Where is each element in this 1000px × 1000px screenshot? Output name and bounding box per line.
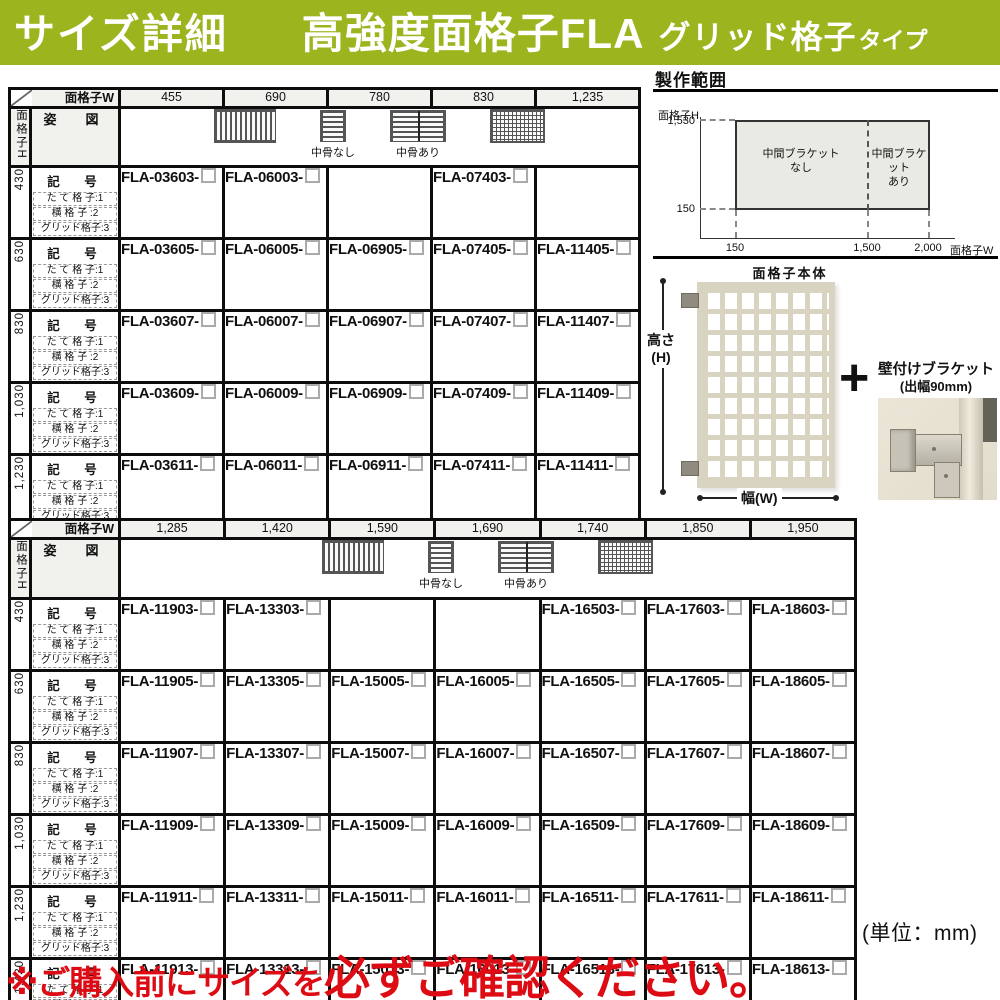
product-code-cell: FLA-06005- <box>224 239 328 311</box>
color-option-box <box>306 816 321 831</box>
product-code: FLA-07405- <box>433 241 511 258</box>
screw <box>944 474 948 478</box>
product-code: FLA-16507- <box>542 745 620 762</box>
product-code: FLA-17605- <box>647 673 725 690</box>
color-option-box <box>513 240 528 255</box>
product-code-cell: FLA-18603- <box>750 599 855 671</box>
figure-cell: 中骨なし中骨あり <box>120 108 640 167</box>
product-code: FLA-18605- <box>752 673 830 690</box>
row-code-header: 記 号た て 格 子:1横 格 子 :2グリッド格子:3 <box>31 239 120 311</box>
color-option-box <box>305 312 320 327</box>
product-code-cell: FLA-06007- <box>224 311 328 383</box>
product-code-cell: FLA-07403- <box>432 167 536 239</box>
product-code-cell <box>328 167 432 239</box>
product-code: FLA-13303- <box>226 601 304 618</box>
product-code: FLA-11903- <box>121 601 198 618</box>
color-option-box <box>726 888 741 903</box>
product-code-cell: FLA-11903- <box>120 599 225 671</box>
color-option-box <box>727 600 742 615</box>
figure-caption: 中骨なし <box>419 575 463 591</box>
row-code-header: 記 号た て 格 子:1横 格 子 :2グリッド格子:3 <box>31 167 120 239</box>
row-code-header: 記 号た て 格 子:1横 格 子 :2グリッド格子:3 <box>31 743 120 815</box>
product-code-cell: FLA-11411- <box>536 455 640 527</box>
product-code-cell: FLA-18609- <box>750 815 855 887</box>
wall-bracket-photo <box>878 398 997 500</box>
product-code: FLA-16011- <box>436 889 513 906</box>
grid-lattice-thumb <box>598 540 653 574</box>
product-code: FLA-06009- <box>225 385 303 402</box>
range-y-min: 150 <box>653 203 695 215</box>
figure-caption: 中骨なし <box>311 144 355 160</box>
product-code: FLA-06011- <box>225 457 302 474</box>
product-code: FLA-07407- <box>433 313 511 330</box>
product-code-cell: FLA-06907- <box>328 311 432 383</box>
color-option-box <box>409 312 424 327</box>
product-code: FLA-16503- <box>542 601 620 618</box>
color-option-box <box>516 816 531 831</box>
product-code: FLA-18607- <box>752 745 830 762</box>
column-width-header: 1,420 <box>225 520 330 539</box>
color-option-box <box>832 960 847 975</box>
product-code: FLA-06907- <box>329 313 407 330</box>
product-code-cell: FLA-13309- <box>225 815 330 887</box>
product-code: FLA-03605- <box>121 241 199 258</box>
color-option-box <box>200 672 215 687</box>
color-option-box <box>201 384 216 399</box>
color-option-box <box>727 816 742 831</box>
color-option-box <box>513 168 528 183</box>
range-zone-right: 中間ブラケット あり <box>869 147 929 189</box>
product-code: FLA-13309- <box>226 817 304 834</box>
range-x-axis <box>700 238 955 239</box>
column-width-header: 1,285 <box>120 520 225 539</box>
product-code-cell: FLA-03607- <box>120 311 224 383</box>
figure-row-label: 姿 図 <box>31 539 120 599</box>
color-option-box <box>516 744 531 759</box>
product-code-cell: FLA-15007- <box>330 743 435 815</box>
product-code: FLA-17607- <box>647 745 725 762</box>
rule-line <box>653 256 998 259</box>
color-option-box <box>305 240 320 255</box>
product-code-cell: FLA-03611- <box>120 455 224 527</box>
column-width-header: 455 <box>120 89 224 108</box>
product-code: FLA-13305- <box>226 673 304 690</box>
color-option-box <box>200 744 215 759</box>
color-option-box <box>305 384 320 399</box>
color-option-box <box>305 168 320 183</box>
color-option-box <box>832 744 847 759</box>
product-code-cell: FLA-03609- <box>120 383 224 455</box>
column-width-header: 830 <box>432 89 536 108</box>
product-code-cell <box>330 599 435 671</box>
product-code-cell: FLA-13305- <box>225 671 330 743</box>
mount-bracket-tab <box>681 461 699 476</box>
color-option-box <box>616 384 631 399</box>
table-side-label: 面格子H <box>10 108 31 167</box>
color-option-box <box>411 744 426 759</box>
product-code-cell <box>435 599 540 671</box>
page: サイズ詳細 高強度面格子FLA グリッド格子 タイプ 面格子W455690780… <box>0 0 1000 1000</box>
product-code: FLA-11409- <box>537 385 614 402</box>
row-height-header: 1,030 <box>10 815 31 887</box>
product-code: FLA-18603- <box>752 601 830 618</box>
product-code-cell: FLA-03605- <box>120 239 224 311</box>
product-code-cell: FLA-15005- <box>330 671 435 743</box>
product-code-cell: FLA-17607- <box>645 743 750 815</box>
window-glass <box>983 398 997 442</box>
dashed-guide <box>867 210 869 238</box>
product-code-cell: FLA-11409- <box>536 383 640 455</box>
product-code: FLA-11911- <box>121 889 197 906</box>
row-height-header: 630 <box>10 239 31 311</box>
product-code-cell: FLA-07411- <box>432 455 536 527</box>
color-option-box <box>516 672 531 687</box>
table-side-label: 面格子H <box>10 539 31 599</box>
product-code: FLA-16009- <box>436 817 514 834</box>
product-code: FLA-15009- <box>331 817 409 834</box>
product-code: FLA-06911- <box>329 457 406 474</box>
product-code-cell: FLA-13303- <box>225 599 330 671</box>
product-code: FLA-11411- <box>537 457 613 474</box>
color-option-box <box>727 672 742 687</box>
product-code-cell: FLA-18605- <box>750 671 855 743</box>
row-height-header: 630 <box>10 671 31 743</box>
height-dimension-label: 高さ (H) <box>641 330 681 368</box>
product-code: FLA-16505- <box>542 673 620 690</box>
lattice-product-image <box>697 282 835 488</box>
color-option-box <box>409 384 424 399</box>
product-code-cell: FLA-16509- <box>540 815 645 887</box>
color-option-box <box>832 600 847 615</box>
dashed-guide <box>700 208 735 210</box>
product-code: FLA-03607- <box>121 313 199 330</box>
corner-cell: 面格子W <box>10 89 120 108</box>
vertical-lattice-thumb <box>214 109 276 143</box>
unit-note: (単位：mm) <box>862 917 977 947</box>
product-code-cell: FLA-13307- <box>225 743 330 815</box>
figure-caption: 中骨あり <box>504 575 548 591</box>
color-option-box <box>513 384 528 399</box>
product-code: FLA-17609- <box>647 817 725 834</box>
bracket-lower <box>934 462 960 498</box>
product-code-cell: FLA-16007- <box>435 743 540 815</box>
product-code-cell: FLA-16503- <box>540 599 645 671</box>
column-width-header: 1,740 <box>540 520 645 539</box>
dashed-guide <box>700 119 735 121</box>
product-code: FLA-11907- <box>121 745 198 762</box>
color-option-box <box>621 888 636 903</box>
product-code: FLA-11905- <box>121 673 198 690</box>
product-code-cell: FLA-06911- <box>328 455 432 527</box>
product-code: FLA-15011- <box>331 889 408 906</box>
product-code: FLA-17611- <box>647 889 724 906</box>
product-code-cell: FLA-17605- <box>645 671 750 743</box>
horizontal-lattice-thumb <box>320 110 346 142</box>
product-code-cell: FLA-11407- <box>536 311 640 383</box>
column-width-header: 780 <box>328 89 432 108</box>
color-option-box <box>306 744 321 759</box>
product-code-cell: FLA-07405- <box>432 239 536 311</box>
product-code: FLA-16511- <box>542 889 619 906</box>
product-code-cell: FLA-06011- <box>224 455 328 527</box>
figure-row-label: 姿 図 <box>31 108 120 167</box>
color-option-box <box>304 456 319 471</box>
product-code: FLA-15007- <box>331 745 409 762</box>
product-code-cell: FLA-16505- <box>540 671 645 743</box>
product-code: FLA-16005- <box>436 673 514 690</box>
row-height-header: 430 <box>10 167 31 239</box>
product-code: FLA-11407- <box>537 313 614 330</box>
color-option-box <box>515 888 530 903</box>
product-code-cell: FLA-11909- <box>120 815 225 887</box>
horizontal-lattice-midrib-thumb <box>390 110 446 142</box>
bracket-block <box>890 429 916 472</box>
product-code-cell: FLA-17603- <box>645 599 750 671</box>
lattice-body-label: 面格子本体 <box>700 263 880 282</box>
product-code-cell: FLA-11905- <box>120 671 225 743</box>
product-code-cell: FLA-16507- <box>540 743 645 815</box>
product-code: FLA-11405- <box>537 241 614 258</box>
product-code-cell: FLA-07407- <box>432 311 536 383</box>
column-width-header: 1,950 <box>750 520 855 539</box>
product-code: FLA-03609- <box>121 385 199 402</box>
product-code: FLA-15005- <box>331 673 409 690</box>
product-code-cell: FLA-18607- <box>750 743 855 815</box>
product-code: FLA-17603- <box>647 601 725 618</box>
product-code: FLA-13307- <box>226 745 304 762</box>
page-title-product: 高強度面格子FLA <box>302 0 645 61</box>
color-option-box <box>409 240 424 255</box>
color-option-box <box>621 816 636 831</box>
color-option-box <box>621 744 636 759</box>
width-axis-label: 面格子W <box>32 521 118 537</box>
product-code-cell: FLA-03603- <box>120 167 224 239</box>
width-dimension-label: 幅(W) <box>737 488 782 508</box>
row-code-header: 記 号た て 格 子:1横 格 子 :2グリッド格子:3 <box>31 671 120 743</box>
column-width-header: 1,690 <box>435 520 540 539</box>
color-option-box <box>200 600 215 615</box>
color-option-box <box>727 744 742 759</box>
color-option-box <box>201 168 216 183</box>
color-option-box <box>621 600 636 615</box>
color-option-box <box>201 312 216 327</box>
product-code: FLA-03603- <box>121 169 199 186</box>
grid-lattice-thumb <box>490 109 545 143</box>
product-code-cell: FLA-06905- <box>328 239 432 311</box>
color-option-box <box>410 888 425 903</box>
product-code-cell: FLA-17609- <box>645 815 750 887</box>
color-option-box <box>832 672 847 687</box>
color-option-box <box>306 600 321 615</box>
range-x-tick: 1,500 <box>842 242 892 254</box>
page-header: サイズ詳細 高強度面格子FLA グリッド格子 タイプ <box>0 0 1000 65</box>
figure-caption: 中骨あり <box>396 144 440 160</box>
product-code-cell: FLA-06909- <box>328 383 432 455</box>
page-title-type-suffix: タイプ <box>858 21 927 55</box>
purchase-warning: ※ご購入前にサイズを必ずご確認ください。 <box>6 942 774 1000</box>
product-code: FLA-11909- <box>121 817 198 834</box>
product-code: FLA-03611- <box>121 457 198 474</box>
product-code-cell: FLA-06009- <box>224 383 328 455</box>
diagonal-divider <box>11 90 32 106</box>
product-code: FLA-06005- <box>225 241 303 258</box>
product-code: FLA-07409- <box>433 385 511 402</box>
product-code: FLA-07411- <box>433 457 510 474</box>
row-code-header: 記 号た て 格 子:1横 格 子 :2グリッド格子:3 <box>31 599 120 671</box>
row-code-header: 記 号た て 格 子:1横 格 子 :2グリッド格子:3 <box>31 311 120 383</box>
color-option-box <box>411 816 426 831</box>
color-option-box <box>616 312 631 327</box>
product-code: FLA-16007- <box>436 745 514 762</box>
range-y-max: 1,530 <box>653 115 695 127</box>
rule-line <box>653 89 998 92</box>
product-code-cell: FLA-16009- <box>435 815 540 887</box>
color-option-box <box>615 456 630 471</box>
product-code-cell: FLA-15009- <box>330 815 435 887</box>
product-code: FLA-13311- <box>226 889 303 906</box>
corner-cell: 面格子W <box>10 520 120 539</box>
product-code-cell <box>536 167 640 239</box>
product-code: FLA-06905- <box>329 241 407 258</box>
production-range-panel: 製作範囲 面格子H 1,530 150 中間ブラケット なし 中間ブラケット あ… <box>653 62 998 258</box>
product-code: FLA-07403- <box>433 169 511 186</box>
frame-bar <box>959 398 983 500</box>
color-option-box <box>201 240 216 255</box>
color-option-box <box>199 888 214 903</box>
color-option-box <box>305 888 320 903</box>
column-width-header: 1,590 <box>330 520 435 539</box>
row-height-header: 430 <box>10 599 31 671</box>
row-height-header: 1,030 <box>10 383 31 455</box>
range-y-axis <box>700 117 701 238</box>
row-height-header: 830 <box>10 743 31 815</box>
color-option-box <box>408 456 423 471</box>
mount-bracket-tab <box>681 293 699 308</box>
vertical-lattice-thumb <box>322 540 384 574</box>
color-option-box <box>512 456 527 471</box>
horizontal-lattice-midrib-thumb <box>498 541 554 573</box>
product-code: FLA-18611- <box>752 889 829 906</box>
row-code-header: 記 号た て 格 子:1横 格 子 :2グリッド格子:3 <box>31 383 120 455</box>
plus-sign: + <box>839 352 869 404</box>
color-option-box <box>411 672 426 687</box>
product-code-cell: FLA-11405- <box>536 239 640 311</box>
color-option-box <box>200 816 215 831</box>
width-axis-label: 面格子W <box>32 90 118 106</box>
product-code-cell: FLA-16005- <box>435 671 540 743</box>
product-code-cell: FLA-06003- <box>224 167 328 239</box>
diagonal-divider <box>11 521 32 537</box>
color-option-box <box>621 672 636 687</box>
product-code-cell: FLA-07409- <box>432 383 536 455</box>
column-width-header: 690 <box>224 89 328 108</box>
color-option-box <box>831 888 846 903</box>
range-x-tick: 2,000 <box>903 242 953 254</box>
page-title-size-detail: サイズ詳細 <box>14 3 228 66</box>
production-range-title: 製作範囲 <box>655 66 727 91</box>
size-table-2: 面格子W1,2851,4201,5901,6901,7401,8501,950面… <box>8 518 857 1000</box>
color-option-box <box>306 672 321 687</box>
row-code-header: 記 号た て 格 子:1横 格 子 :2グリッド格子:3 <box>31 815 120 887</box>
row-height-header: 830 <box>10 311 31 383</box>
dashed-guide <box>735 210 737 238</box>
figure-cell: 中骨なし中骨あり <box>120 539 856 599</box>
color-option-box <box>513 312 528 327</box>
horizontal-lattice-thumb <box>428 541 454 573</box>
product-code: FLA-06909- <box>329 385 407 402</box>
range-x-tick: 150 <box>710 242 760 254</box>
row-height-header: 1,230 <box>10 455 31 527</box>
screw <box>932 447 936 451</box>
height-dimension-line <box>662 281 664 492</box>
wall-bracket-caption: 壁付けブラケット (出幅90mm) <box>874 362 998 394</box>
range-zone-left: 中間ブラケット なし <box>746 147 856 175</box>
dashed-guide <box>928 210 930 238</box>
color-option-box <box>832 816 847 831</box>
color-option-box <box>200 456 215 471</box>
row-code-header: 記 号た て 格 子:1横 格 子 :2グリッド格子:3 <box>31 455 120 527</box>
product-code: FLA-16509- <box>542 817 620 834</box>
color-option-box <box>616 240 631 255</box>
column-width-header: 1,850 <box>645 520 750 539</box>
product-code: FLA-06003- <box>225 169 303 186</box>
column-width-header: 1,235 <box>536 89 640 108</box>
page-title-type: グリッド格子 <box>658 12 856 58</box>
product-code: FLA-18609- <box>752 817 830 834</box>
product-code: FLA-06007- <box>225 313 303 330</box>
product-code-cell: FLA-11907- <box>120 743 225 815</box>
